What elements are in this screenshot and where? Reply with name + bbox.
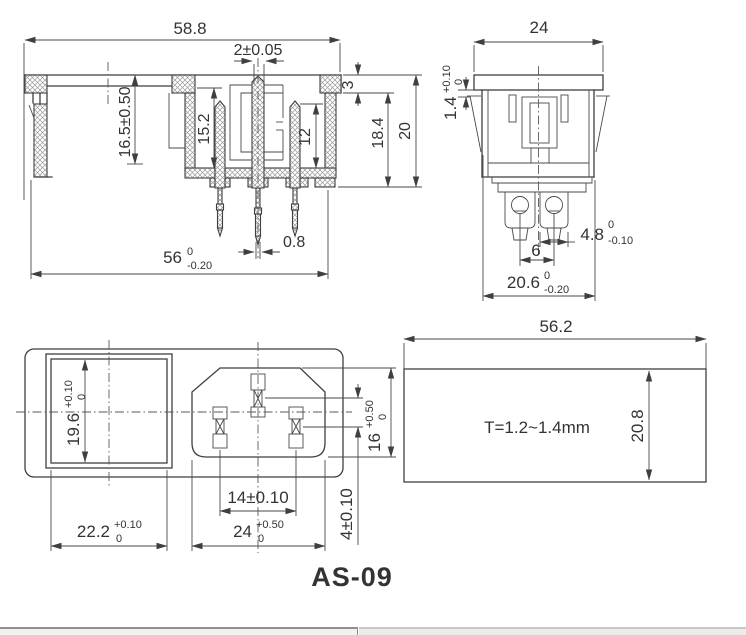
dim-tol-lower: 0 bbox=[76, 394, 88, 400]
dim-label: 20.8 bbox=[628, 409, 647, 442]
dim-label: 2±0.05 bbox=[234, 42, 283, 59]
dim-step-3: 3 bbox=[340, 62, 394, 106]
dim-16-5: 16.5±0.50 bbox=[117, 75, 143, 164]
side-pins bbox=[215, 76, 300, 245]
dim-label: 12 bbox=[297, 128, 314, 146]
dim-24-end: 24 bbox=[474, 18, 603, 72]
left-flange-block bbox=[25, 75, 47, 93]
dim-1-4: 1.4 +0.10 0 bbox=[441, 65, 480, 120]
dim-label: 20 bbox=[397, 122, 414, 140]
right-flange-block bbox=[320, 75, 341, 93]
cropped-table-cell-left bbox=[0, 627, 358, 635]
dim-tol-lower: -0.20 bbox=[544, 284, 569, 296]
dim-22-2: 22.2 +0.10 0 bbox=[51, 470, 167, 551]
dim-label: 14±0.10 bbox=[227, 488, 288, 507]
side-part-outline bbox=[25, 58, 341, 258]
dim-label: 56.2 bbox=[539, 317, 572, 336]
dim-56-2: 56.2 bbox=[404, 317, 706, 369]
fuse-tower bbox=[522, 97, 557, 148]
dim-tol-upper: +0.50 bbox=[364, 400, 376, 428]
dim-label: 24 bbox=[233, 522, 252, 541]
dim-label: 19.6 bbox=[64, 413, 83, 446]
dim-56: 56 0 -0.20 bbox=[31, 180, 328, 279]
view-panel-cutout: 56.2 20.8 T=1.2~1.4mm bbox=[404, 317, 706, 482]
dim-label: 22.2 bbox=[77, 522, 110, 541]
dim-0-8: 0.8 bbox=[238, 234, 305, 259]
dim-tol-upper: 0 bbox=[544, 270, 550, 282]
dim-tol-upper: +0.10 bbox=[63, 380, 75, 408]
dim-tol-upper: +0.10 bbox=[114, 519, 142, 531]
dim-tol-upper: +0.50 bbox=[256, 519, 284, 531]
dim-label: 4±0.10 bbox=[337, 488, 356, 540]
cropped-table-edge bbox=[0, 627, 746, 635]
dim-tol-lower: -0.10 bbox=[608, 235, 633, 247]
dim-19-6: 19.6 +0.10 0 bbox=[63, 360, 88, 462]
dim-tol-upper: 0 bbox=[608, 219, 614, 231]
view-face: 19.6 +0.10 0 22.2 +0.10 0 14±0.10 24 bbox=[16, 340, 396, 553]
dim-label: 24 bbox=[530, 18, 549, 37]
dim-label: 18.4 bbox=[370, 117, 387, 148]
cropped-table-cell-right bbox=[359, 627, 746, 635]
clip-taper bbox=[29, 105, 34, 118]
page-title: AS-09 bbox=[311, 562, 393, 592]
pocket-step bbox=[169, 93, 185, 148]
dim-label: 0.8 bbox=[283, 234, 305, 251]
dim-tol-lower: -0.20 bbox=[187, 260, 212, 272]
right-wall bbox=[325, 93, 336, 170]
left-slot bbox=[509, 95, 516, 122]
view-side-section: 58.8 2±0.05 3 18.4 20 bbox=[24, 19, 422, 279]
dim-16: 16 +0.50 0 bbox=[302, 368, 396, 457]
left-clip bbox=[34, 104, 47, 177]
dim-label: 16.5±0.50 bbox=[117, 86, 134, 157]
dim-label: 20.6 bbox=[507, 273, 540, 292]
live-pin bbox=[213, 407, 227, 448]
drawing-svg: 58.8 2±0.05 3 18.4 20 bbox=[0, 0, 746, 635]
dim-label: 6 bbox=[531, 241, 540, 260]
terminals bbox=[505, 192, 568, 240]
dim-tol-upper: +0.10 bbox=[441, 65, 453, 93]
dim-tol-upper: 0 bbox=[187, 246, 193, 258]
dim-tol-lower: 0 bbox=[258, 533, 264, 545]
neutral-pin bbox=[289, 407, 303, 448]
dim-label: 58.8 bbox=[173, 19, 206, 38]
iec-inlet-outline bbox=[192, 368, 325, 457]
dim-label: 16 bbox=[365, 433, 384, 452]
left-wall bbox=[185, 93, 195, 170]
right-slot bbox=[561, 95, 568, 122]
mid-flange-block bbox=[172, 75, 195, 93]
dim-label: 1.4 bbox=[441, 96, 460, 120]
dim-tol-lower: 0 bbox=[116, 533, 122, 545]
dim-tol-lower: 0 bbox=[453, 79, 465, 85]
dim-12: 12 bbox=[297, 104, 323, 168]
dim-label: 15.2 bbox=[196, 113, 213, 144]
dim-label: 56 bbox=[163, 248, 182, 267]
dim-20-8: 20.8 bbox=[628, 371, 649, 480]
dim-tol-lower: 0 bbox=[377, 414, 389, 420]
dim-label: 4.8 bbox=[580, 225, 604, 244]
panel-thickness-note: T=1.2~1.4mm bbox=[484, 418, 590, 437]
technical-drawing-page: 58.8 2±0.05 3 18.4 20 bbox=[0, 0, 746, 635]
dim-label: 3 bbox=[340, 80, 357, 89]
view-end: 24 1.4 +0.10 0 4.8 0 -0.10 bbox=[441, 18, 633, 301]
